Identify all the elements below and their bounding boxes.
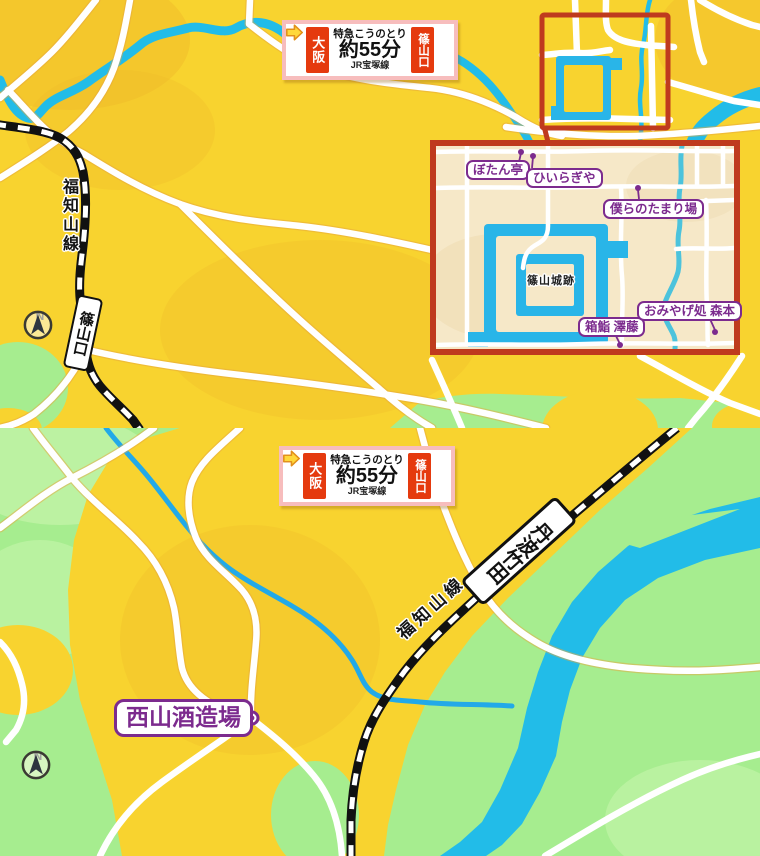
route-to-label: 篠山口 bbox=[414, 459, 426, 494]
brewery-label: 西山酒造場 bbox=[114, 699, 253, 737]
castle-ruins-label: 篠山城跡 bbox=[527, 272, 575, 288]
route-banner-bottom: 大阪 特急こうのとり 約55分 JR宝塚線 篠山口 bbox=[279, 446, 455, 506]
travel-duration: 約55分 bbox=[339, 40, 401, 61]
route-banner-top: 大阪 特急こうのとり 約55分 JR宝塚線 篠山口 bbox=[282, 20, 458, 80]
poi-tamariba: 僕らのたまり場 bbox=[603, 199, 704, 219]
route-from-label: 大阪 bbox=[311, 36, 324, 64]
route-to-badge: 篠山口 bbox=[408, 453, 431, 499]
route-detail: 特急こうのとり 約55分 JR宝塚線 bbox=[329, 455, 405, 496]
route-from-label: 大阪 bbox=[308, 462, 321, 490]
route-from-badge: 大阪 bbox=[306, 27, 329, 73]
compass-icon bbox=[21, 750, 51, 780]
poi-botantei: ぼたん亭 bbox=[466, 160, 530, 180]
poi-hiiragiya: ひいらぎや bbox=[526, 168, 603, 188]
station-name: 篠山口 bbox=[71, 309, 95, 356]
railway-name-label-top: 福知山線 bbox=[56, 178, 80, 254]
travel-duration: 約55分 bbox=[336, 466, 398, 487]
route-to-badge: 篠山口 bbox=[411, 27, 434, 73]
line-name: JR宝塚線 bbox=[348, 487, 387, 496]
poi-hakozushi: 箱鮨 澤藤 bbox=[578, 317, 645, 337]
compass-icon bbox=[23, 310, 53, 340]
compass-top: N bbox=[23, 310, 57, 362]
arrow-right-icon bbox=[286, 24, 303, 41]
arrow-right-icon bbox=[283, 450, 300, 467]
route-from-badge: 大阪 bbox=[303, 453, 326, 499]
tourist-map-illustration: 大阪 特急こうのとり 約55分 JR宝塚線 篠山口 大阪 特急こうのとり 約55… bbox=[0, 0, 760, 856]
poi-miyagedokoro: おみやげ処 森本 bbox=[637, 301, 742, 321]
compass-bottom: N bbox=[21, 750, 55, 802]
route-detail: 特急こうのとり 約55分 JR宝塚線 bbox=[332, 29, 408, 70]
inset-bottom-road bbox=[436, 343, 734, 345]
line-name: JR宝塚線 bbox=[351, 61, 390, 70]
route-to-label: 篠山口 bbox=[417, 33, 429, 68]
